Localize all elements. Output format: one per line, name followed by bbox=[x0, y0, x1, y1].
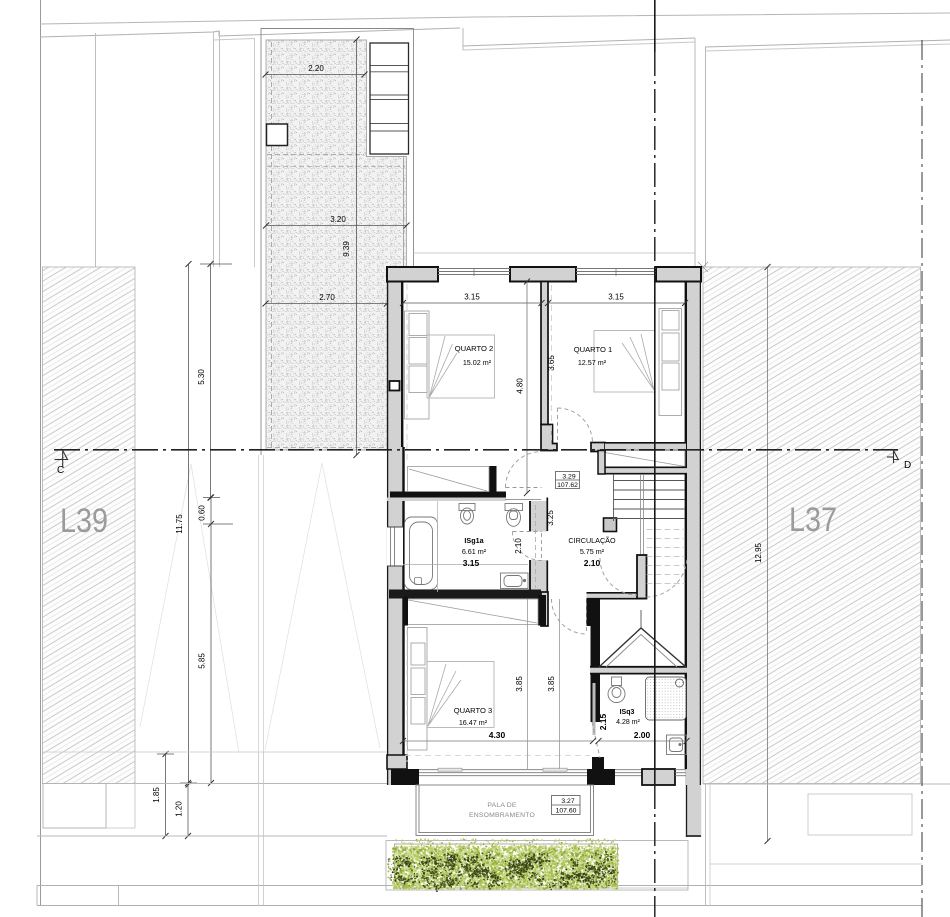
svg-text:0.60: 0.60 bbox=[198, 505, 207, 521]
svg-text:107.62: 107.62 bbox=[557, 482, 578, 489]
svg-text:6.61 m²: 6.61 m² bbox=[462, 547, 487, 556]
svg-text:12.95: 12.95 bbox=[754, 542, 763, 563]
svg-text:2.00: 2.00 bbox=[634, 730, 651, 740]
svg-text:5.75 m²: 5.75 m² bbox=[580, 547, 605, 556]
svg-text:9.39: 9.39 bbox=[342, 241, 351, 257]
svg-text:3.25: 3.25 bbox=[546, 510, 555, 526]
svg-text:3.20: 3.20 bbox=[330, 215, 346, 224]
svg-text:3.27: 3.27 bbox=[561, 798, 574, 805]
svg-text:3.15: 3.15 bbox=[463, 558, 480, 568]
svg-text:5.30: 5.30 bbox=[197, 369, 206, 385]
svg-text:QUARTO 2: QUARTO 2 bbox=[455, 344, 494, 353]
svg-text:107.60: 107.60 bbox=[556, 807, 577, 814]
svg-text:2.15: 2.15 bbox=[598, 713, 608, 730]
svg-text:ISg1a: ISg1a bbox=[464, 536, 484, 545]
svg-text:11.75: 11.75 bbox=[175, 514, 184, 534]
svg-text:ENSOMBRAMENTO: ENSOMBRAMENTO bbox=[469, 812, 535, 819]
svg-text:PALA DE: PALA DE bbox=[487, 802, 516, 809]
svg-text:4.30: 4.30 bbox=[489, 730, 506, 740]
svg-text:2.10: 2.10 bbox=[584, 558, 601, 568]
svg-text:4.28 m²: 4.28 m² bbox=[616, 719, 640, 726]
svg-text:2.20: 2.20 bbox=[308, 64, 324, 73]
svg-text:QUARTO 1: QUARTO 1 bbox=[574, 345, 613, 354]
svg-text:3.15: 3.15 bbox=[608, 293, 624, 302]
svg-text:QUARTO 3: QUARTO 3 bbox=[454, 706, 493, 715]
svg-text:ISq3: ISq3 bbox=[620, 709, 635, 716]
svg-text:2.70: 2.70 bbox=[319, 293, 335, 302]
svg-text:3.85: 3.85 bbox=[515, 676, 524, 692]
svg-text:3.65: 3.65 bbox=[547, 355, 556, 371]
svg-text:L37: L37 bbox=[789, 501, 837, 539]
svg-text:3.15: 3.15 bbox=[464, 293, 480, 302]
svg-text:16.47 m²: 16.47 m² bbox=[459, 718, 488, 727]
svg-text:1.85: 1.85 bbox=[152, 787, 161, 803]
svg-text:12.57 m²: 12.57 m² bbox=[578, 358, 607, 367]
svg-text:5.85: 5.85 bbox=[198, 653, 207, 669]
svg-text:1.20: 1.20 bbox=[175, 801, 184, 817]
svg-text:3.29: 3.29 bbox=[562, 473, 575, 480]
svg-text:2.10: 2.10 bbox=[514, 538, 523, 554]
svg-text:3.85: 3.85 bbox=[547, 676, 556, 692]
svg-text:CIRCULAÇÃO: CIRCULAÇÃO bbox=[568, 536, 616, 545]
svg-text:L39: L39 bbox=[60, 502, 108, 540]
svg-text:4.80: 4.80 bbox=[516, 378, 525, 394]
svg-text:15.02 m²: 15.02 m² bbox=[463, 358, 492, 367]
